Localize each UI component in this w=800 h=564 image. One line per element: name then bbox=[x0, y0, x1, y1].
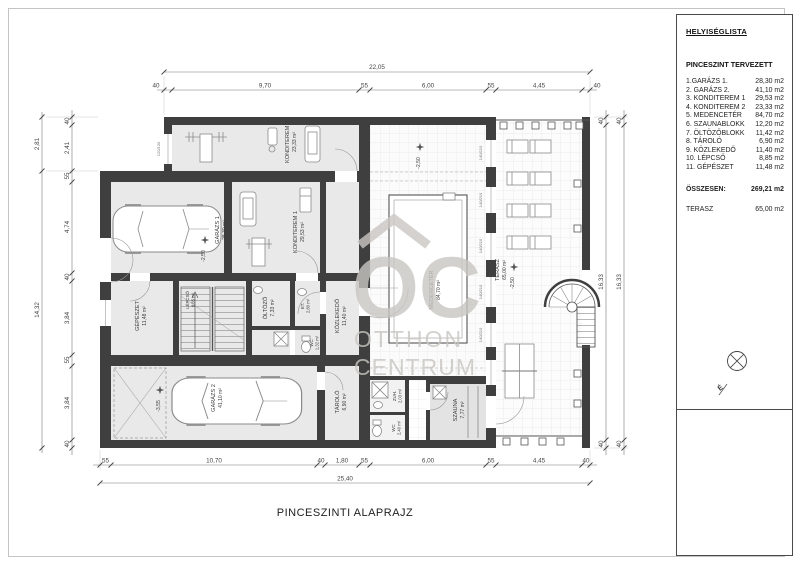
svg-text:40: 40 bbox=[616, 440, 623, 448]
svg-text:-2,50: -2,50 bbox=[416, 157, 422, 169]
room-list-row: 7. ÖLTÖZŐBLOKK11,42 m2 bbox=[686, 130, 784, 139]
room-list-row: 2. GARÁZS 2.41,10 m2 bbox=[686, 87, 784, 96]
svg-text:40: 40 bbox=[593, 83, 601, 90]
svg-text:11,48 m²: 11,48 m² bbox=[142, 306, 148, 326]
svg-text:40: 40 bbox=[152, 83, 160, 90]
svg-text:ZUH.: ZUH. bbox=[392, 391, 397, 401]
svg-text:SZAUNA: SZAUNA bbox=[453, 398, 459, 421]
svg-text:40: 40 bbox=[598, 440, 605, 448]
svg-text:LÉPCSŐ: LÉPCSŐ bbox=[185, 291, 190, 309]
room-label-szauna: SZAUNA7,77 m² bbox=[453, 398, 466, 421]
svg-text:40: 40 bbox=[616, 117, 623, 125]
svg-text:40: 40 bbox=[582, 458, 590, 465]
svg-text:55: 55 bbox=[64, 172, 71, 180]
svg-text:40: 40 bbox=[317, 458, 325, 465]
svg-text:22,05: 22,05 bbox=[369, 64, 385, 71]
svg-text:9,70: 9,70 bbox=[259, 83, 272, 90]
svg-text:65,00 m²: 65,00 m² bbox=[502, 260, 508, 280]
svg-text:OC: OC bbox=[352, 240, 481, 336]
car-icon bbox=[113, 204, 221, 254]
title-block-divider bbox=[676, 409, 793, 410]
svg-text:29,53 m²: 29,53 m² bbox=[300, 222, 306, 242]
svg-text:41,10 m²: 41,10 m² bbox=[218, 388, 224, 408]
otthon-centrum-watermark: OC OTTHON CENTRUM bbox=[352, 219, 481, 380]
svg-text:-2,50: -2,50 bbox=[510, 277, 516, 289]
drawing-title: PINCESZINTI ALAPRAJZ bbox=[165, 507, 525, 519]
svg-text:KÖZLEKEDŐ: KÖZLEKEDŐ bbox=[334, 298, 341, 333]
svg-text:-3,55: -3,55 bbox=[156, 400, 162, 412]
title-block-panel: HELYISÉGLISTA PINCESZINT TERVEZETT 1.GAR… bbox=[676, 14, 793, 556]
svg-text:40: 40 bbox=[598, 117, 605, 125]
svg-text:3,84: 3,84 bbox=[64, 396, 71, 409]
svg-text:4,45: 4,45 bbox=[533, 458, 546, 465]
room-list-row: 11. GÉPÉSZET11,48 m2 bbox=[686, 164, 784, 173]
svg-text:WC: WC bbox=[309, 339, 314, 346]
svg-text:40: 40 bbox=[64, 117, 71, 125]
svg-text:55: 55 bbox=[487, 83, 495, 90]
svg-text:GÉPÉSZET: GÉPÉSZET bbox=[134, 300, 141, 330]
room-list-row: 8. TÁROLÓ6,90 m2 bbox=[686, 138, 784, 147]
svg-text:40: 40 bbox=[64, 440, 71, 448]
svg-text:10,70: 10,70 bbox=[206, 458, 222, 465]
svg-text:3,84: 3,84 bbox=[64, 311, 71, 324]
room-list-row: 10. LÉPCSŐ8,85 m2 bbox=[686, 155, 784, 164]
svg-text:4,74: 4,74 bbox=[64, 220, 71, 233]
svg-text:6,90 m²: 6,90 m² bbox=[342, 393, 348, 410]
svg-text:2,40 m²: 2,40 m² bbox=[397, 420, 402, 435]
svg-text:16,33: 16,33 bbox=[598, 274, 605, 290]
svg-text:GARÁZS 2: GARÁZS 2 bbox=[210, 384, 217, 412]
room-label-terasz: TERASZ65,00 m² bbox=[495, 258, 508, 281]
svg-text:14,32: 14,32 bbox=[34, 302, 41, 318]
floor-plan-drawing: 22,05 40 9,70 55 6,00 55 4,45 40 55 10,7… bbox=[0, 0, 676, 564]
north-label: É bbox=[716, 382, 726, 392]
room-list: 1.GARÁZS 1.28,30 m2 2. GARÁZS 2.41,10 m2… bbox=[686, 78, 784, 173]
svg-text:6,00: 6,00 bbox=[422, 458, 435, 465]
svg-text:55: 55 bbox=[487, 458, 495, 465]
svg-text:23,33 m²: 23,33 m² bbox=[292, 132, 298, 152]
svg-text:2,80 m²: 2,80 m² bbox=[306, 298, 311, 313]
svg-text:55: 55 bbox=[64, 356, 71, 364]
svg-text:55: 55 bbox=[361, 458, 369, 465]
svg-text:CENTRUM: CENTRUM bbox=[354, 354, 476, 380]
svg-text:25,40: 25,40 bbox=[337, 476, 353, 483]
svg-text:-2,50: -2,50 bbox=[201, 250, 207, 262]
svg-text:OTTHON: OTTHON bbox=[354, 326, 463, 352]
svg-text:140/210: 140/210 bbox=[478, 192, 483, 207]
room-label-lepcso: LÉPCSŐ8,85 m² bbox=[185, 291, 196, 309]
room-list-row: 5. MEDENCETÉR84,70 m2 bbox=[686, 112, 784, 121]
room-list-row: 1.GARÁZS 1.28,30 m2 bbox=[686, 78, 784, 87]
table-tennis-icon bbox=[502, 344, 537, 398]
room-list-subheading: PINCESZINT TERVEZETT bbox=[686, 60, 784, 69]
svg-text:28,30 m²: 28,30 m² bbox=[222, 220, 228, 240]
compass-icon: É bbox=[711, 345, 763, 407]
room-list-row: 3. KONDITEREM 129,53 m2 bbox=[686, 95, 784, 104]
svg-text:140/210: 140/210 bbox=[478, 145, 483, 160]
svg-text:1,80: 1,80 bbox=[336, 458, 349, 465]
svg-text:6,00: 6,00 bbox=[422, 83, 435, 90]
svg-text:55: 55 bbox=[361, 83, 369, 90]
room-list-row: 6. SZAUNABLOKK12,20 m2 bbox=[686, 121, 784, 130]
room-list-total-row: ÖSSZESEN:269,21 m2 bbox=[686, 186, 784, 195]
svg-text:2,03 m²: 2,03 m² bbox=[398, 388, 403, 403]
room-list-heading: HELYISÉGLISTA bbox=[686, 27, 784, 36]
svg-text:GARÁZS 1: GARÁZS 1 bbox=[214, 216, 221, 244]
svg-text:4,45: 4,45 bbox=[533, 83, 546, 90]
svg-text:KONDITEREM 2: KONDITEREM 2 bbox=[285, 121, 291, 163]
svg-text:ÖLTÖZŐ: ÖLTÖZŐ bbox=[262, 296, 269, 319]
pool-ladder-icon bbox=[443, 193, 455, 200]
svg-text:1,32 m²: 1,32 m² bbox=[315, 335, 320, 350]
car-icon bbox=[172, 376, 302, 426]
svg-text:2,81: 2,81 bbox=[34, 137, 41, 150]
svg-text:16,33: 16,33 bbox=[616, 274, 623, 290]
svg-text:KONDITEREM 1: KONDITEREM 1 bbox=[293, 211, 299, 253]
svg-text:120/130: 120/130 bbox=[156, 141, 161, 156]
room-list-terrace-row: TERASZ65,00 m2 bbox=[686, 206, 784, 215]
svg-text:ET.: ET. bbox=[300, 303, 305, 309]
svg-text:TÁROLÓ: TÁROLÓ bbox=[334, 390, 341, 414]
svg-text:WC: WC bbox=[391, 424, 396, 431]
svg-text:40: 40 bbox=[64, 273, 71, 281]
svg-text:55: 55 bbox=[102, 458, 110, 465]
svg-text:7,77 m²: 7,77 m² bbox=[460, 401, 466, 418]
svg-text:TERASZ: TERASZ bbox=[495, 258, 501, 281]
svg-text:8,85 m²: 8,85 m² bbox=[191, 292, 196, 307]
svg-text:7,33 m²: 7,33 m² bbox=[270, 299, 276, 316]
svg-text:2,41: 2,41 bbox=[64, 141, 71, 154]
svg-text:11,40 m²: 11,40 m² bbox=[342, 306, 348, 326]
